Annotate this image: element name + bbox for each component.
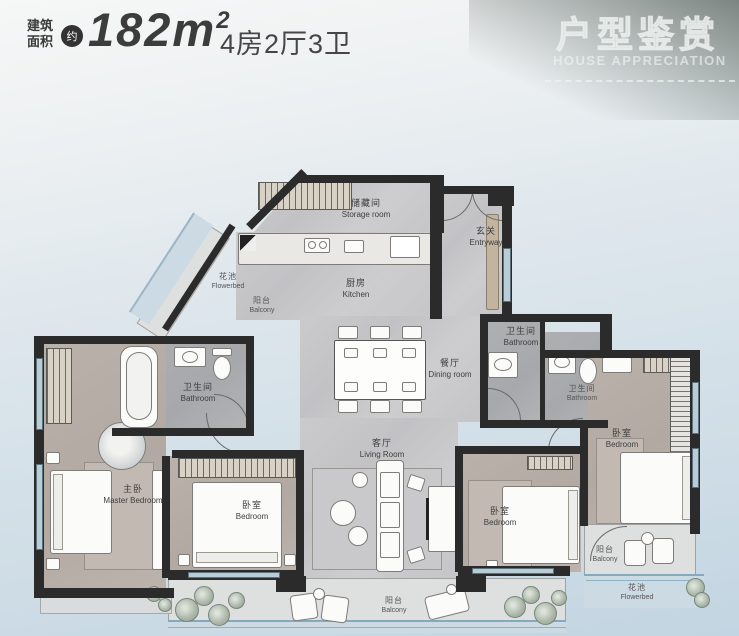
pier-entry-corner	[488, 186, 514, 206]
tv-icon	[426, 498, 429, 540]
room-label-cn: 卧室	[236, 500, 268, 512]
pier-balcony-left	[276, 576, 306, 592]
banner-subtitle: HOUSE APPRECIATION	[553, 53, 727, 68]
plant-icon	[534, 602, 557, 625]
balcony-table	[313, 588, 325, 600]
area-number: 182m	[88, 3, 216, 56]
room-label-en: Storage room	[342, 210, 390, 220]
room-label-en: Bathroom	[504, 338, 539, 348]
dining-chair	[338, 326, 358, 339]
room-label-cn: 卫生间	[181, 382, 216, 394]
room-label-cn: 花池	[212, 272, 245, 282]
toilet-tank-icon	[212, 348, 232, 356]
bedroom3-bed-pillows	[568, 490, 578, 560]
kitchen-sink-icon	[344, 240, 364, 253]
flowerbed-right-line	[586, 580, 702, 581]
wall-bathroom-divider	[540, 322, 545, 426]
balcony-right-chair	[652, 538, 674, 564]
wall-bathroom-left-right	[246, 342, 254, 436]
bathtub-basin	[126, 352, 152, 420]
room-label-en: Bedroom	[484, 518, 516, 528]
bedroom2-wardrobe	[178, 458, 296, 478]
room-label-en: Kitchen	[343, 290, 370, 300]
room-label-cn: 餐厅	[428, 358, 471, 370]
room-label-en: Bedroom	[236, 512, 268, 522]
wall-bedroom3-top	[455, 446, 585, 454]
room-label-en: Living Room	[360, 450, 404, 460]
wall-bedroom4-top	[545, 350, 695, 358]
room-label-en: Entryway	[470, 238, 503, 248]
dining-chair	[338, 400, 358, 413]
room-label-bathroom-left: 卫生间 Bathroom	[181, 382, 216, 404]
sofa-cushion	[380, 472, 400, 498]
bedroom3-wardrobe	[527, 456, 573, 470]
dining-chair	[370, 326, 390, 339]
room-label-bathroom-right: 卫生间 Bathroom	[567, 384, 597, 403]
room-label-balcony-right: 阳台 Balcony	[593, 545, 618, 564]
wall-bathrooms-top	[480, 314, 608, 322]
plant-icon	[694, 592, 710, 608]
plant-icon	[228, 592, 245, 609]
wall-bedroom4-right	[690, 350, 700, 532]
room-label-entryway: 玄关 Entryway	[470, 226, 503, 248]
pier-bedroom4-bottom	[690, 518, 700, 534]
room-label-bathroom-mid: 卫生间 Bathroom	[504, 326, 539, 348]
place-setting	[344, 348, 358, 358]
bedroom4-wardrobe	[670, 357, 691, 453]
room-label-en: Flowerbed	[621, 593, 654, 602]
pouf	[348, 526, 368, 546]
sink-bowl-icon	[494, 358, 512, 371]
room-label-en: Bedroom	[606, 440, 638, 450]
room-label-flowerbed-right: 花池 Flowerbed	[621, 583, 654, 602]
plant-icon	[158, 598, 172, 612]
room-label-en: Balcony	[593, 555, 618, 564]
nightstand	[46, 558, 60, 570]
plant-icon	[522, 586, 540, 604]
entry-right-window	[503, 248, 511, 302]
room-label-cn: 卧室	[606, 428, 638, 440]
room-label-cn: 卫生间	[567, 384, 597, 394]
room-label-en: Dining room	[428, 370, 471, 380]
wall-master-bedroom2	[162, 456, 170, 578]
room-label-living: 客厅 Living Room	[360, 438, 404, 460]
sink-bowl-icon	[182, 351, 198, 363]
nightstand	[46, 452, 60, 464]
room-label-balcony-left: 阳台 Balcony	[250, 296, 275, 315]
room-label-cn: 客厅	[360, 438, 404, 450]
wall-master-bottom	[34, 588, 174, 598]
plant-icon	[551, 590, 567, 606]
room-label-bedroom-4: 卧室 Bedroom	[606, 428, 638, 450]
dining-chair	[370, 400, 390, 413]
balcony-chair	[320, 594, 349, 623]
place-setting	[373, 348, 387, 358]
bedroom4-window-a	[692, 382, 699, 434]
toilet-bowl-icon	[579, 358, 597, 384]
master-window-b	[36, 464, 43, 550]
room-label-cn: 卫生间	[504, 326, 539, 338]
master-window-a	[36, 358, 43, 430]
kitchen-window-box	[390, 236, 420, 258]
balcony-right-chair	[624, 540, 646, 566]
pouf	[330, 500, 356, 526]
place-setting	[402, 348, 416, 358]
banner-dashed-line	[545, 80, 735, 82]
room-label-cn: 卧室	[484, 506, 516, 518]
layout-summary: 4房2厅3卫	[220, 22, 352, 61]
banner-title: 户型鉴赏	[556, 6, 720, 58]
room-label-cn: 阳台	[382, 596, 407, 606]
room-label-cn: 主卧	[103, 484, 162, 496]
cooktop-burner-icon	[308, 241, 316, 249]
wall-leftwing-top	[40, 336, 254, 344]
room-label-en: Balcony	[382, 606, 407, 615]
nightstand	[178, 554, 190, 566]
master-wardrobe	[46, 348, 72, 424]
room-label-cn: 阳台	[250, 296, 275, 306]
plant-icon	[194, 586, 214, 606]
built-area-label-line1: 建筑	[27, 18, 53, 34]
wall-bedroom2-top	[172, 450, 304, 458]
cooktop-burner-icon	[319, 241, 327, 249]
bedroom2-window	[188, 572, 280, 578]
sofa-cushion	[380, 532, 400, 558]
wall-bathroom-left-bottom	[112, 428, 254, 436]
wall-bedroom4-left	[580, 426, 588, 526]
bedroom2-bed-pillows	[196, 552, 278, 563]
room-label-bedroom-2: 卧室 Bedroom	[236, 500, 268, 522]
bedroom4-closet	[643, 357, 673, 373]
built-area-label: 建筑 面积	[27, 18, 53, 51]
wall-storage-top	[298, 175, 438, 183]
flowerbed-bottom-line	[168, 627, 566, 628]
room-label-cn: 阳台	[593, 545, 618, 555]
bedroom4-window-b	[692, 448, 699, 488]
sofa-cushion	[380, 502, 400, 528]
room-label-cn: 储藏间	[342, 198, 390, 210]
dining-chair	[402, 326, 422, 339]
wall-living-bedroom3	[455, 446, 463, 572]
side-table	[352, 472, 368, 488]
master-bed-pillows	[53, 474, 63, 550]
room-label-master-bedroom: 主卧 Master Bedroom	[103, 484, 162, 506]
wall-bedroom2-living	[296, 450, 304, 576]
room-label-kitchen: 厨房 Kitchen	[343, 278, 370, 300]
nightstand	[284, 554, 296, 566]
room-label-en: Bathroom	[181, 394, 216, 404]
room-label-en: Bathroom	[567, 394, 597, 403]
balcony-right-table	[641, 532, 654, 545]
room-label-cn: 花池	[621, 583, 654, 593]
room-label-en: Flowerbed	[212, 282, 245, 291]
room-label-flowerbed-left: 花池 Flowerbed	[212, 272, 245, 291]
room-label-cn: 厨房	[343, 278, 370, 290]
built-area-label-line2: 面积	[27, 34, 53, 50]
toilet-bowl-icon	[213, 356, 231, 380]
room-label-cn: 玄关	[470, 226, 503, 238]
place-setting	[373, 382, 387, 392]
approx-badge: 约	[61, 25, 83, 47]
wall-bathroom-mid-left	[480, 314, 488, 426]
room-label-dining: 餐厅 Dining room	[428, 358, 471, 380]
kitchen-corner-icon	[240, 235, 256, 251]
bedroom4-cabinet	[602, 357, 632, 373]
pier-balcony-right	[456, 576, 486, 592]
wall-kitchen-entry	[430, 233, 442, 319]
place-setting	[344, 382, 358, 392]
room-label-bedroom-3: 卧室 Bedroom	[484, 506, 516, 528]
area-value: 182m2	[88, 2, 232, 57]
dining-chair	[402, 400, 422, 413]
plant-icon	[208, 604, 230, 626]
room-label-en: Balcony	[250, 306, 275, 315]
floor-plan-page: 建筑 面积 约 182m2 4房2厅3卫 户型鉴赏 HOUSE APPRECIA…	[0, 0, 739, 636]
room-label-storage: 储藏间 Storage room	[342, 198, 390, 220]
wall-storage-right	[430, 175, 444, 233]
bedroom3-window	[472, 568, 554, 574]
room-label-en: Master Bedroom	[103, 496, 162, 506]
room-label-balcony-bottom: 阳台 Balcony	[382, 596, 407, 615]
place-setting	[402, 382, 416, 392]
wall-bathrooms-bottom	[480, 420, 608, 428]
